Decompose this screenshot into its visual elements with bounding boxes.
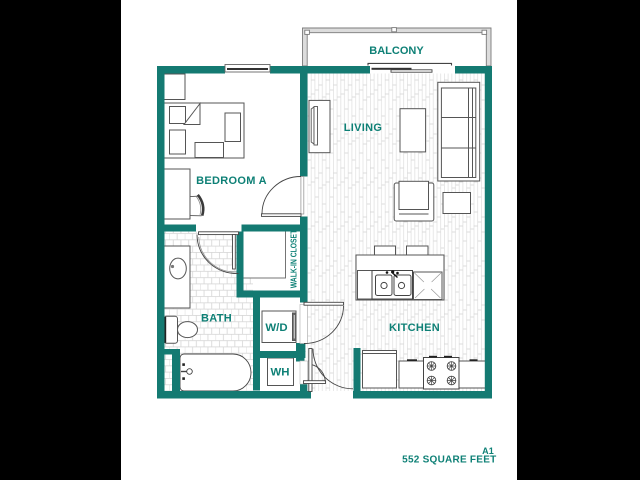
- svg-text:552 SQUARE FEET: 552 SQUARE FEET: [402, 455, 496, 466]
- svg-text:BALCONY: BALCONY: [369, 45, 424, 57]
- svg-text:BEDROOM A: BEDROOM A: [196, 175, 267, 187]
- svg-text:KITCHEN: KITCHEN: [389, 322, 440, 334]
- svg-text:WH: WH: [271, 367, 290, 379]
- svg-text:W/D: W/D: [265, 322, 287, 334]
- svg-text:BATH: BATH: [201, 313, 232, 325]
- svg-text:LIVING: LIVING: [344, 122, 382, 134]
- svg-text:WALK-IN CLOSET: WALK-IN CLOSET: [289, 229, 299, 288]
